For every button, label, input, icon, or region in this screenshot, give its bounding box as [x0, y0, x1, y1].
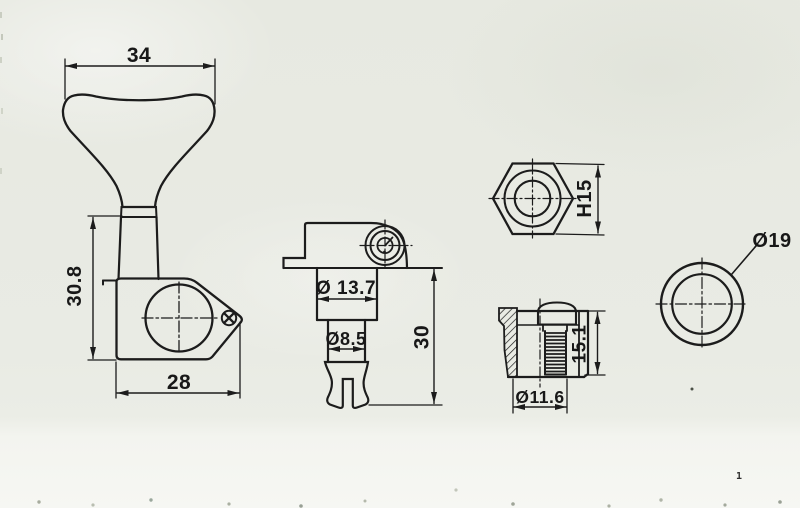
dim-label-body-height: 30.8	[64, 266, 86, 307]
dim-label-post-diameter: Ø8.5	[325, 329, 366, 349]
bushing-section-wall	[499, 308, 517, 377]
dim-label-bushing-diameter: Ø11.6	[515, 387, 564, 407]
drawing-canvas: 34 30.8 28 Ø 13.7 Ø8.5 30 H15 15.1 Ø11.6…	[0, 0, 800, 508]
dim-label-side-height: 30	[411, 325, 434, 349]
technical-drawing-page: 34 30.8 28 Ø 13.7 Ø8.5 30 H15 15.1 Ø11.6…	[0, 0, 800, 508]
key-front-view	[63, 59, 215, 279]
key-outline	[63, 95, 215, 207]
screw-threads	[545, 331, 566, 375]
scan-noise-left-edge	[0, 0, 2, 6]
dim-label-body-width: 28	[167, 371, 191, 394]
gear-housing-front-view	[88, 216, 242, 398]
key-collar	[121, 207, 157, 217]
dim-label-bushing-height: 15.1	[570, 325, 591, 364]
stray-print-mark: 1	[736, 471, 742, 482]
washer-view	[656, 246, 756, 350]
tuner-side-view	[284, 220, 443, 408]
screw-head	[538, 303, 576, 325]
scan-speck	[691, 388, 694, 391]
dim-label-washer-diameter: Ø19	[752, 230, 791, 252]
dim-label-key-width: 34	[127, 44, 151, 67]
dim-label-nut-height: H15	[574, 179, 596, 217]
dim-label-cap-diameter: Ø 13.7	[316, 278, 376, 299]
string-spool	[325, 362, 368, 408]
